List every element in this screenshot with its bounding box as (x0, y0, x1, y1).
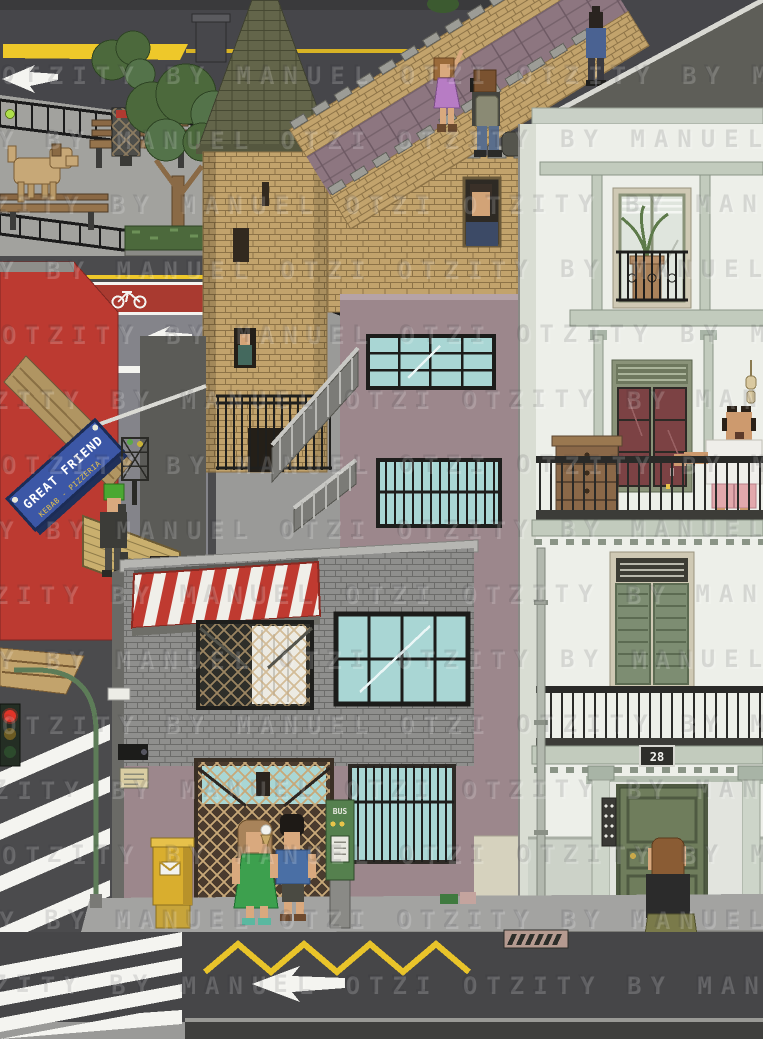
shuttered-window (610, 552, 694, 690)
bus-machine-label: BUS (333, 807, 348, 816)
postbox (151, 838, 194, 928)
wall-lamp (108, 688, 130, 700)
intercom-panel (602, 798, 616, 846)
pixel-art-scene: GREAT FRIEND KEBAB - PIZZERIA (0, 0, 763, 1039)
red-light (4, 710, 16, 722)
bottom-sidewalk (185, 1022, 763, 1039)
warehouse-window (368, 336, 494, 388)
side-building (140, 336, 206, 566)
tower-window-person (234, 328, 256, 368)
gated-window (198, 622, 312, 708)
drain-grate (504, 930, 568, 948)
plant-window (613, 188, 691, 308)
house-number: 28 (650, 750, 664, 764)
barred-window (378, 460, 500, 526)
cornice (570, 310, 763, 326)
tennis-ball (6, 110, 15, 119)
bus-ticket-machine: BUS (326, 800, 354, 928)
ledge (540, 162, 763, 175)
wall-window-man (464, 178, 500, 246)
apartment-building: 28 (518, 0, 763, 932)
notice-sign (120, 768, 148, 788)
bottom-street (0, 930, 763, 1039)
doormat (440, 894, 458, 904)
french-doors (612, 360, 692, 492)
ground-barred-window (350, 766, 454, 862)
big-blue-window (336, 614, 468, 704)
